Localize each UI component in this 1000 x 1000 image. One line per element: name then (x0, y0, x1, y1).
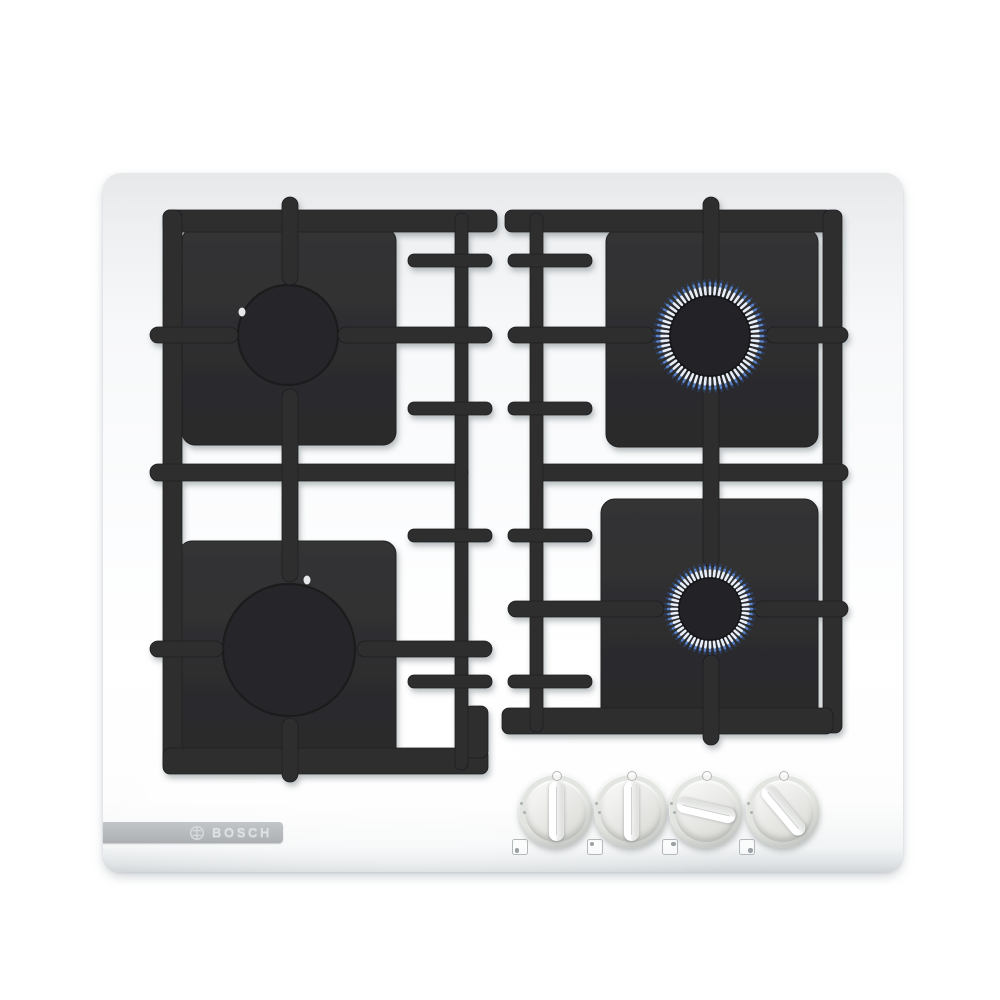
knob-position-marker (702, 771, 712, 781)
ladder-finger (508, 675, 592, 688)
grate-left (150, 197, 497, 782)
cross-finger (357, 641, 492, 657)
cross-finger (338, 327, 492, 343)
center-bar-segment (703, 386, 719, 567)
knob-front-left[interactable] (523, 778, 589, 844)
bosch-logo-icon (189, 825, 205, 841)
knob-handle[interactable] (758, 783, 808, 839)
product-photo: BOSCH (0, 0, 1000, 1000)
burner-position-dot (515, 848, 520, 853)
burner-position-dot (748, 848, 753, 853)
center-bar-segment (282, 197, 298, 285)
spark-dot (595, 802, 598, 805)
pan-support-grates (0, 0, 1000, 1000)
cross-finger (508, 601, 664, 617)
cross-finger (754, 601, 848, 617)
burner-head (679, 578, 741, 640)
ladder-finger (408, 402, 492, 415)
ladder-finger (408, 254, 492, 267)
cross-finger (508, 327, 654, 343)
grate-right-top-rail (505, 210, 833, 232)
grate-left-left-rail (163, 210, 182, 772)
burner-position-dot (590, 842, 595, 847)
grate-left-top-rail (163, 210, 497, 232)
burner-front-left (223, 584, 355, 716)
center-bar-segment (282, 718, 298, 782)
knob-handle[interactable] (624, 781, 639, 841)
knob-handle[interactable] (549, 781, 564, 841)
knob-handle[interactable] (675, 797, 737, 825)
ladder-finger (508, 254, 592, 267)
burner-head (670, 296, 750, 376)
ladder-finger (408, 675, 492, 688)
brand-badge: BOSCH (103, 822, 283, 843)
burner-position-icon (512, 839, 528, 855)
spark-dot (750, 811, 753, 814)
spark-dot (598, 811, 601, 814)
center-bar-segment (282, 389, 298, 582)
knob-back-right[interactable] (673, 778, 739, 844)
grate-left-bottom-rail (163, 748, 488, 774)
spark-dot (670, 802, 673, 805)
cross-finger (766, 327, 848, 343)
burner-position-dot (671, 842, 676, 847)
cross-finger (150, 327, 238, 343)
cross-finger (150, 641, 223, 657)
burner-position-icon (587, 839, 603, 855)
knob-position-marker (779, 771, 789, 781)
ignition-highlight (239, 308, 246, 317)
grate-right-ladder (530, 213, 543, 732)
center-bar-segment (703, 655, 719, 745)
knob-front-right[interactable] (750, 778, 816, 844)
ladder-finger (508, 402, 592, 415)
brand-name: BOSCH (212, 826, 272, 839)
burner-position-icon (662, 839, 678, 855)
grate-left-middle-rail (150, 464, 468, 481)
grate-right (502, 197, 848, 745)
ignition-highlight (304, 576, 311, 585)
grate-right-middle-rail (532, 464, 848, 481)
burner-back-left (238, 285, 338, 385)
burner-position-icon (739, 839, 755, 855)
knob-position-marker (552, 771, 562, 781)
spark-dot (747, 802, 750, 805)
grate-right-bottom-rail (502, 708, 833, 734)
knob-back-left[interactable] (598, 778, 664, 844)
ladder-finger (408, 529, 492, 542)
spark-dot (523, 811, 526, 814)
ladder-finger (508, 529, 592, 542)
knob-position-marker (627, 771, 637, 781)
spark-dot (673, 811, 676, 814)
spark-dot (520, 802, 523, 805)
center-bar-segment (703, 197, 719, 286)
